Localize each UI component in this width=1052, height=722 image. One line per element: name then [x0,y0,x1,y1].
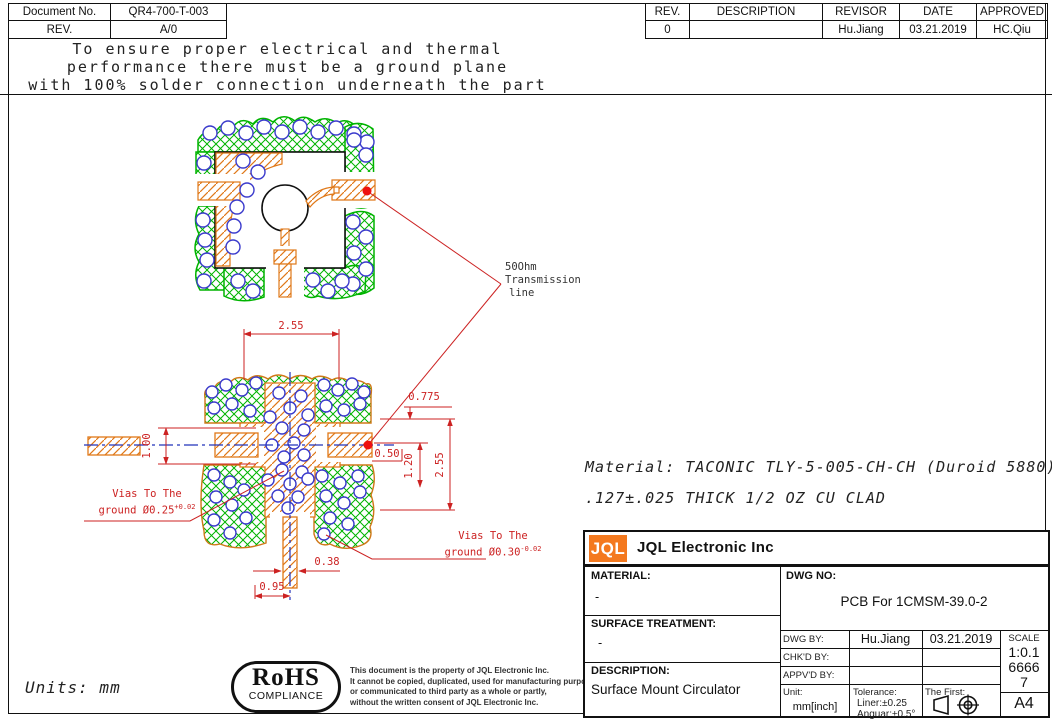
dwg-date-value: 03.21.2019 [922,632,1000,646]
description-value: Surface Mount Circulator [591,682,740,697]
unit-label: Unit: [783,687,803,698]
rohs-subtitle: COMPLIANCE [234,690,338,703]
surface-treatment-label: SURFACE TREATMENT: [591,618,716,630]
surface-treatment-value: - [598,636,602,650]
tolerance-liner: Liner:±0.25 [857,698,907,709]
rohs-logo: RoHS COMPLIANCE [231,661,341,713]
description-label: DESCRIPTION: [591,665,670,677]
disclaimer-line-4: without the written consent of JQL Elect… [350,698,599,709]
material-value: - [595,590,599,604]
dim-stub-offset: 0.95 [259,581,284,593]
dwg-by-label: DWG BY: [783,634,824,645]
chkd-by-label: CHK'D BY: [783,652,829,663]
vias-left-label-2: ground Ø0.25+0.02 [82,501,212,518]
vias-right-label-1: Vias To The [425,530,561,543]
dim-inner-height: 1.20 [403,453,415,478]
rohs-title: RoHS [234,666,338,690]
scale-value-3: 7 [1000,674,1048,690]
property-disclaimer: This document is the property of JQL Ele… [350,666,599,708]
transmission-line-label-2: Transmission [505,274,581,287]
scale-value-1: 1:0.1 [1000,644,1048,660]
material-note: Material: TACONIC TLY-5-005-CH-CH (Duroi… [585,452,1045,514]
vias-left-label: Vias To The ground Ø0.25+0.02 [82,488,212,518]
material-note-line-2: .127±.025 THICK 1/2 OZ CU CLAD [585,483,1045,514]
disclaimer-line-1: This document is the property of JQL Ele… [350,666,599,677]
feed-point-marker-bottom [364,441,373,450]
dim-gap: 0.50 [374,448,399,460]
dwg-no-value: PCB For 1CMSM-39.0-2 [780,594,1048,609]
scale-value-2: 6666 [1000,659,1048,675]
transmission-line-label-3: line [505,287,581,300]
unit-value: mm[inch] [783,701,847,713]
dim-stub-width: 0.38 [314,556,339,568]
transmission-line-label: 50Ohm Transmission line [505,261,581,300]
projection-symbol-icon [930,694,990,716]
units-note: Units: mm [25,678,121,697]
dim-pad-offset: 0.775 [408,391,440,403]
feed-point-marker-top [363,187,372,196]
company-name: JQL Electronic Inc [637,532,774,563]
scale-label: SCALE [1000,633,1048,644]
dim-total-height: 2.55 [434,452,446,477]
paper-size: A4 [1000,695,1048,713]
tolerance-label: Tolerance: [853,687,897,698]
dim-pad-height: 1.00 [141,433,153,458]
tolerance-anguar: Anguar:±0.5° [857,709,915,720]
dwg-no-label: DWG NO: [786,570,836,582]
jql-logo: JQL [589,535,627,562]
engineering-drawing-sheet: { "doc_info": { "doc_no_label": "Documen… [0,0,1052,722]
material-label: MATERIAL: [591,570,651,582]
dim-top-width: 2.55 [278,320,303,332]
disclaimer-line-3: or communicated to third party as a whol… [350,687,599,698]
transmission-line-label-1: 50Ohm [505,261,581,274]
vias-right-label: Vias To The ground Ø0.30-0.02 [425,530,561,560]
material-note-line-1: Material: TACONIC TLY-5-005-CH-CH (Duroi… [585,452,1045,483]
vias-left-label-1: Vias To The [82,488,212,501]
disclaimer-line-2: It cannot be copied, duplicated, used fo… [350,677,599,688]
top-footprint-drawing [194,117,376,301]
appvd-by-label: APPV'D BY: [783,670,834,681]
vias-right-label-2: ground Ø0.30-0.02 [425,543,561,560]
dwg-by-value: Hu.Jiang [849,632,922,646]
title-block: JQL JQL Electronic Inc MATERIAL: - SURFA… [583,530,1050,718]
